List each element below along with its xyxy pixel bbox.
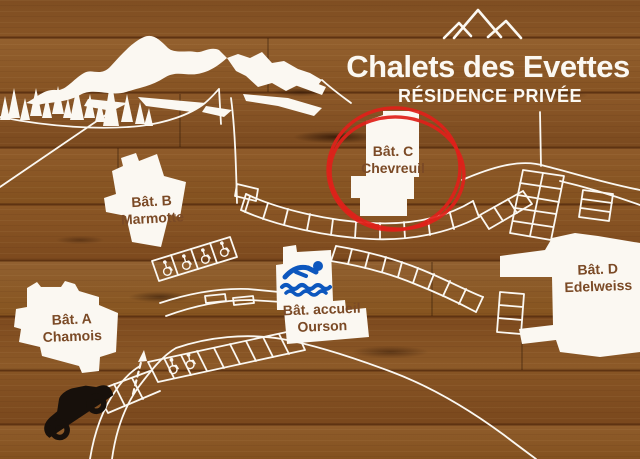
parking-row-south <box>96 330 305 413</box>
building-label-d: Bât. D Edelweiss <box>547 259 640 297</box>
wheelchair-icon <box>198 247 211 264</box>
building-label-c: Bât. C Chevreuil <box>340 143 446 177</box>
building-label-a: Bât. A Chamois <box>21 309 122 347</box>
wheelchair-icon <box>160 259 173 276</box>
sign-subtitle: RÉSIDENCE PRIVÉE <box>398 86 582 107</box>
building-label-b: Bât. B Marmotte <box>101 190 203 229</box>
resort-map-sign: Chalets des Evettes RÉSIDENCE PRIVÉE Bât… <box>0 0 640 459</box>
sign-title: Chalets des Evettes <box>336 49 640 85</box>
building-label-accueil: Bât. accueil Ourson <box>261 299 382 337</box>
wheelchair-icon <box>217 240 230 257</box>
parking-grid-d <box>497 292 524 334</box>
building-d-name: Edelweiss <box>548 276 640 297</box>
building-c-name: Chevreuil <box>340 160 446 177</box>
building-c-code: Bât. C <box>340 143 446 160</box>
mountain-peaks-icon <box>444 10 521 38</box>
building-a-name: Chamois <box>22 326 123 347</box>
accessible-parking-row <box>152 237 237 281</box>
car-icon <box>32 370 118 444</box>
wheelchair-icon <box>179 253 192 270</box>
